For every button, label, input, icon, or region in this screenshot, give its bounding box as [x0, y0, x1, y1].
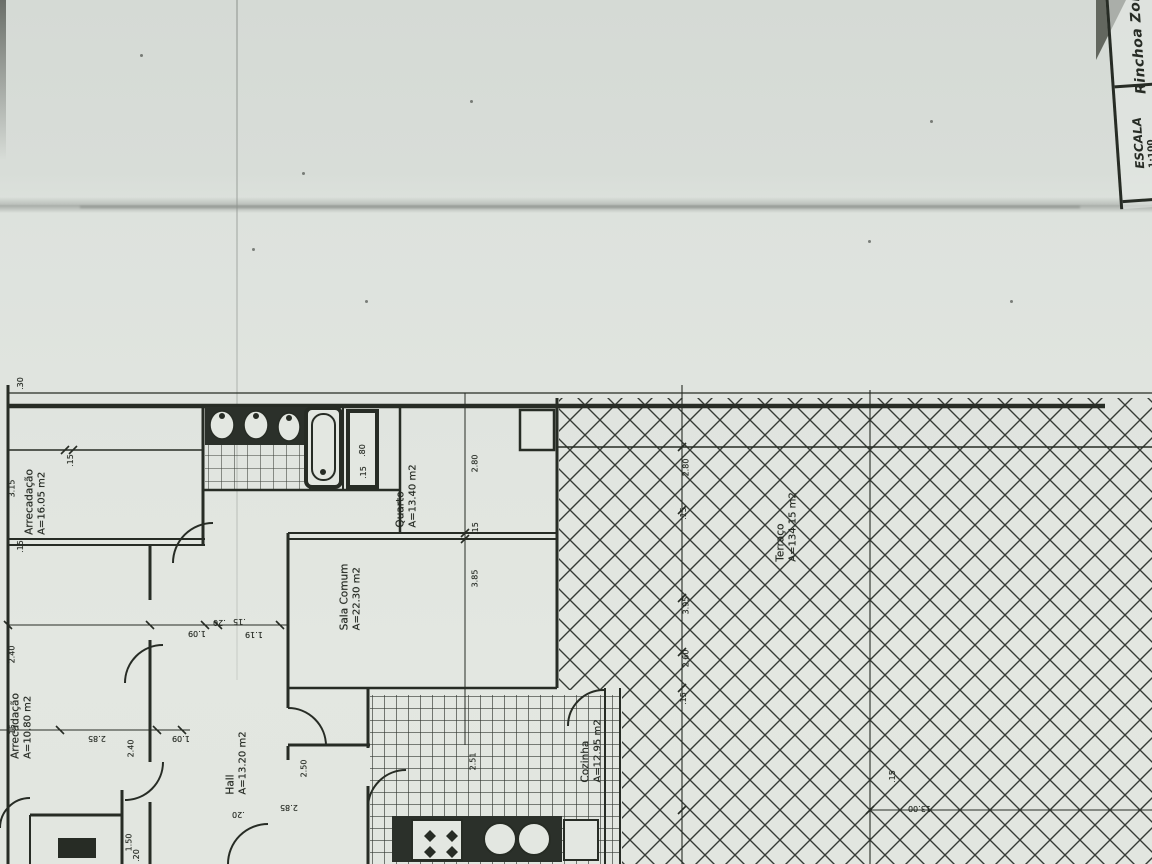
room-label-arrecadacao-16: ArrecadaçãoA=16.05 m2 — [25, 469, 48, 535]
room-name: Hall — [226, 731, 238, 794]
dimension-label: .30 — [16, 377, 25, 390]
room-name: Arrecadação — [25, 469, 37, 535]
room-name: Quarto — [396, 464, 408, 527]
room-label-terraco: TerraçoA=134.15 m2 — [776, 492, 799, 562]
room-label-quarto: QuartoA=13.40 m2 — [396, 464, 419, 527]
dimension-label: .15 — [66, 454, 75, 467]
kitchen-fixtures — [392, 816, 598, 862]
bathtub — [306, 408, 341, 487]
dimension-label: 3.15 — [7, 480, 16, 498]
dimension-label: 2.40 — [126, 740, 135, 758]
dimension-label: .15 — [16, 540, 25, 553]
paper-speck — [868, 240, 871, 243]
dimension-label: .15 — [8, 724, 17, 737]
room-area: A=22.30 m2 — [351, 564, 362, 631]
paper-speck — [365, 300, 368, 303]
dimension-label: 1.09 — [188, 629, 206, 638]
room-name: Sala Comum — [340, 564, 352, 631]
dimension-label: .80 — [358, 444, 367, 457]
room-label-sala-comum: Sala ComumA=22.30 m2 — [340, 564, 363, 631]
dimension-label: 2.80 — [681, 459, 690, 477]
dimension-label: 3.95 — [681, 597, 690, 615]
sink-bowl — [518, 823, 550, 855]
title-block-scale-cell: ESCALA 1:100 — [1115, 85, 1152, 203]
paper-speck — [1010, 300, 1013, 303]
counter-unit — [564, 820, 598, 860]
paper-speck — [302, 172, 305, 175]
dimension-label: .20 — [232, 810, 245, 819]
dimension-label: 3.85 — [470, 570, 479, 588]
scale-value: 1:100 — [1146, 139, 1152, 168]
dimension-label: 2.80 — [470, 455, 479, 473]
dimension-label: .15 — [679, 692, 688, 705]
dimension-label: .15 — [888, 770, 897, 783]
dimension-label: 13.00 — [908, 804, 931, 813]
room-label-hall: HallA=13.20 m2 — [226, 731, 249, 794]
dimension-label: .15 — [359, 466, 368, 479]
room-name: Terraço — [776, 492, 788, 562]
dimension-label: .15 — [471, 522, 480, 535]
dimension-label: .20 — [213, 618, 226, 627]
paper-speck — [140, 54, 143, 57]
dimension-label: 2.51 — [468, 753, 477, 771]
dimension-label: 1.19 — [245, 630, 263, 639]
dimension-label: .15 — [233, 617, 246, 626]
paper-speck — [470, 100, 473, 103]
room-area: A=134.15 m2 — [787, 492, 798, 562]
room-label-cozinha: CozinhaA=12.95 m2 — [581, 719, 604, 782]
dimension-label: 1.09 — [172, 734, 190, 743]
dimension-label: .15 — [679, 507, 688, 520]
paper-speck — [252, 248, 255, 251]
sink-bowl — [484, 823, 516, 855]
dimension-label: .20 — [132, 849, 141, 862]
project-name: Rinchoa Zona — [1125, 0, 1149, 95]
room-area: A=10.80 m2 — [22, 693, 33, 759]
dimension-label: 2.60 — [681, 650, 690, 668]
title-block-project-cell: Rinchoa Zona — [1108, 0, 1152, 88]
room-area: A=13.40 m2 — [407, 464, 418, 527]
dimension-label: 2.40 — [7, 646, 16, 664]
dimension-label: 2.50 — [299, 760, 308, 778]
room-area: A=13.20 m2 — [237, 731, 248, 794]
scale-block: ESCALA 1:100 — [1131, 116, 1152, 169]
dimension-label: 2.85 — [88, 734, 106, 743]
terrace-hatch-area — [559, 398, 1152, 864]
room-name: Cozinha — [581, 719, 593, 782]
paper-speck — [930, 120, 933, 123]
dimension-label: 2.85 — [280, 803, 298, 812]
room-area: A=12.95 m2 — [592, 719, 603, 782]
room-area: A=16.05 m2 — [36, 469, 47, 535]
